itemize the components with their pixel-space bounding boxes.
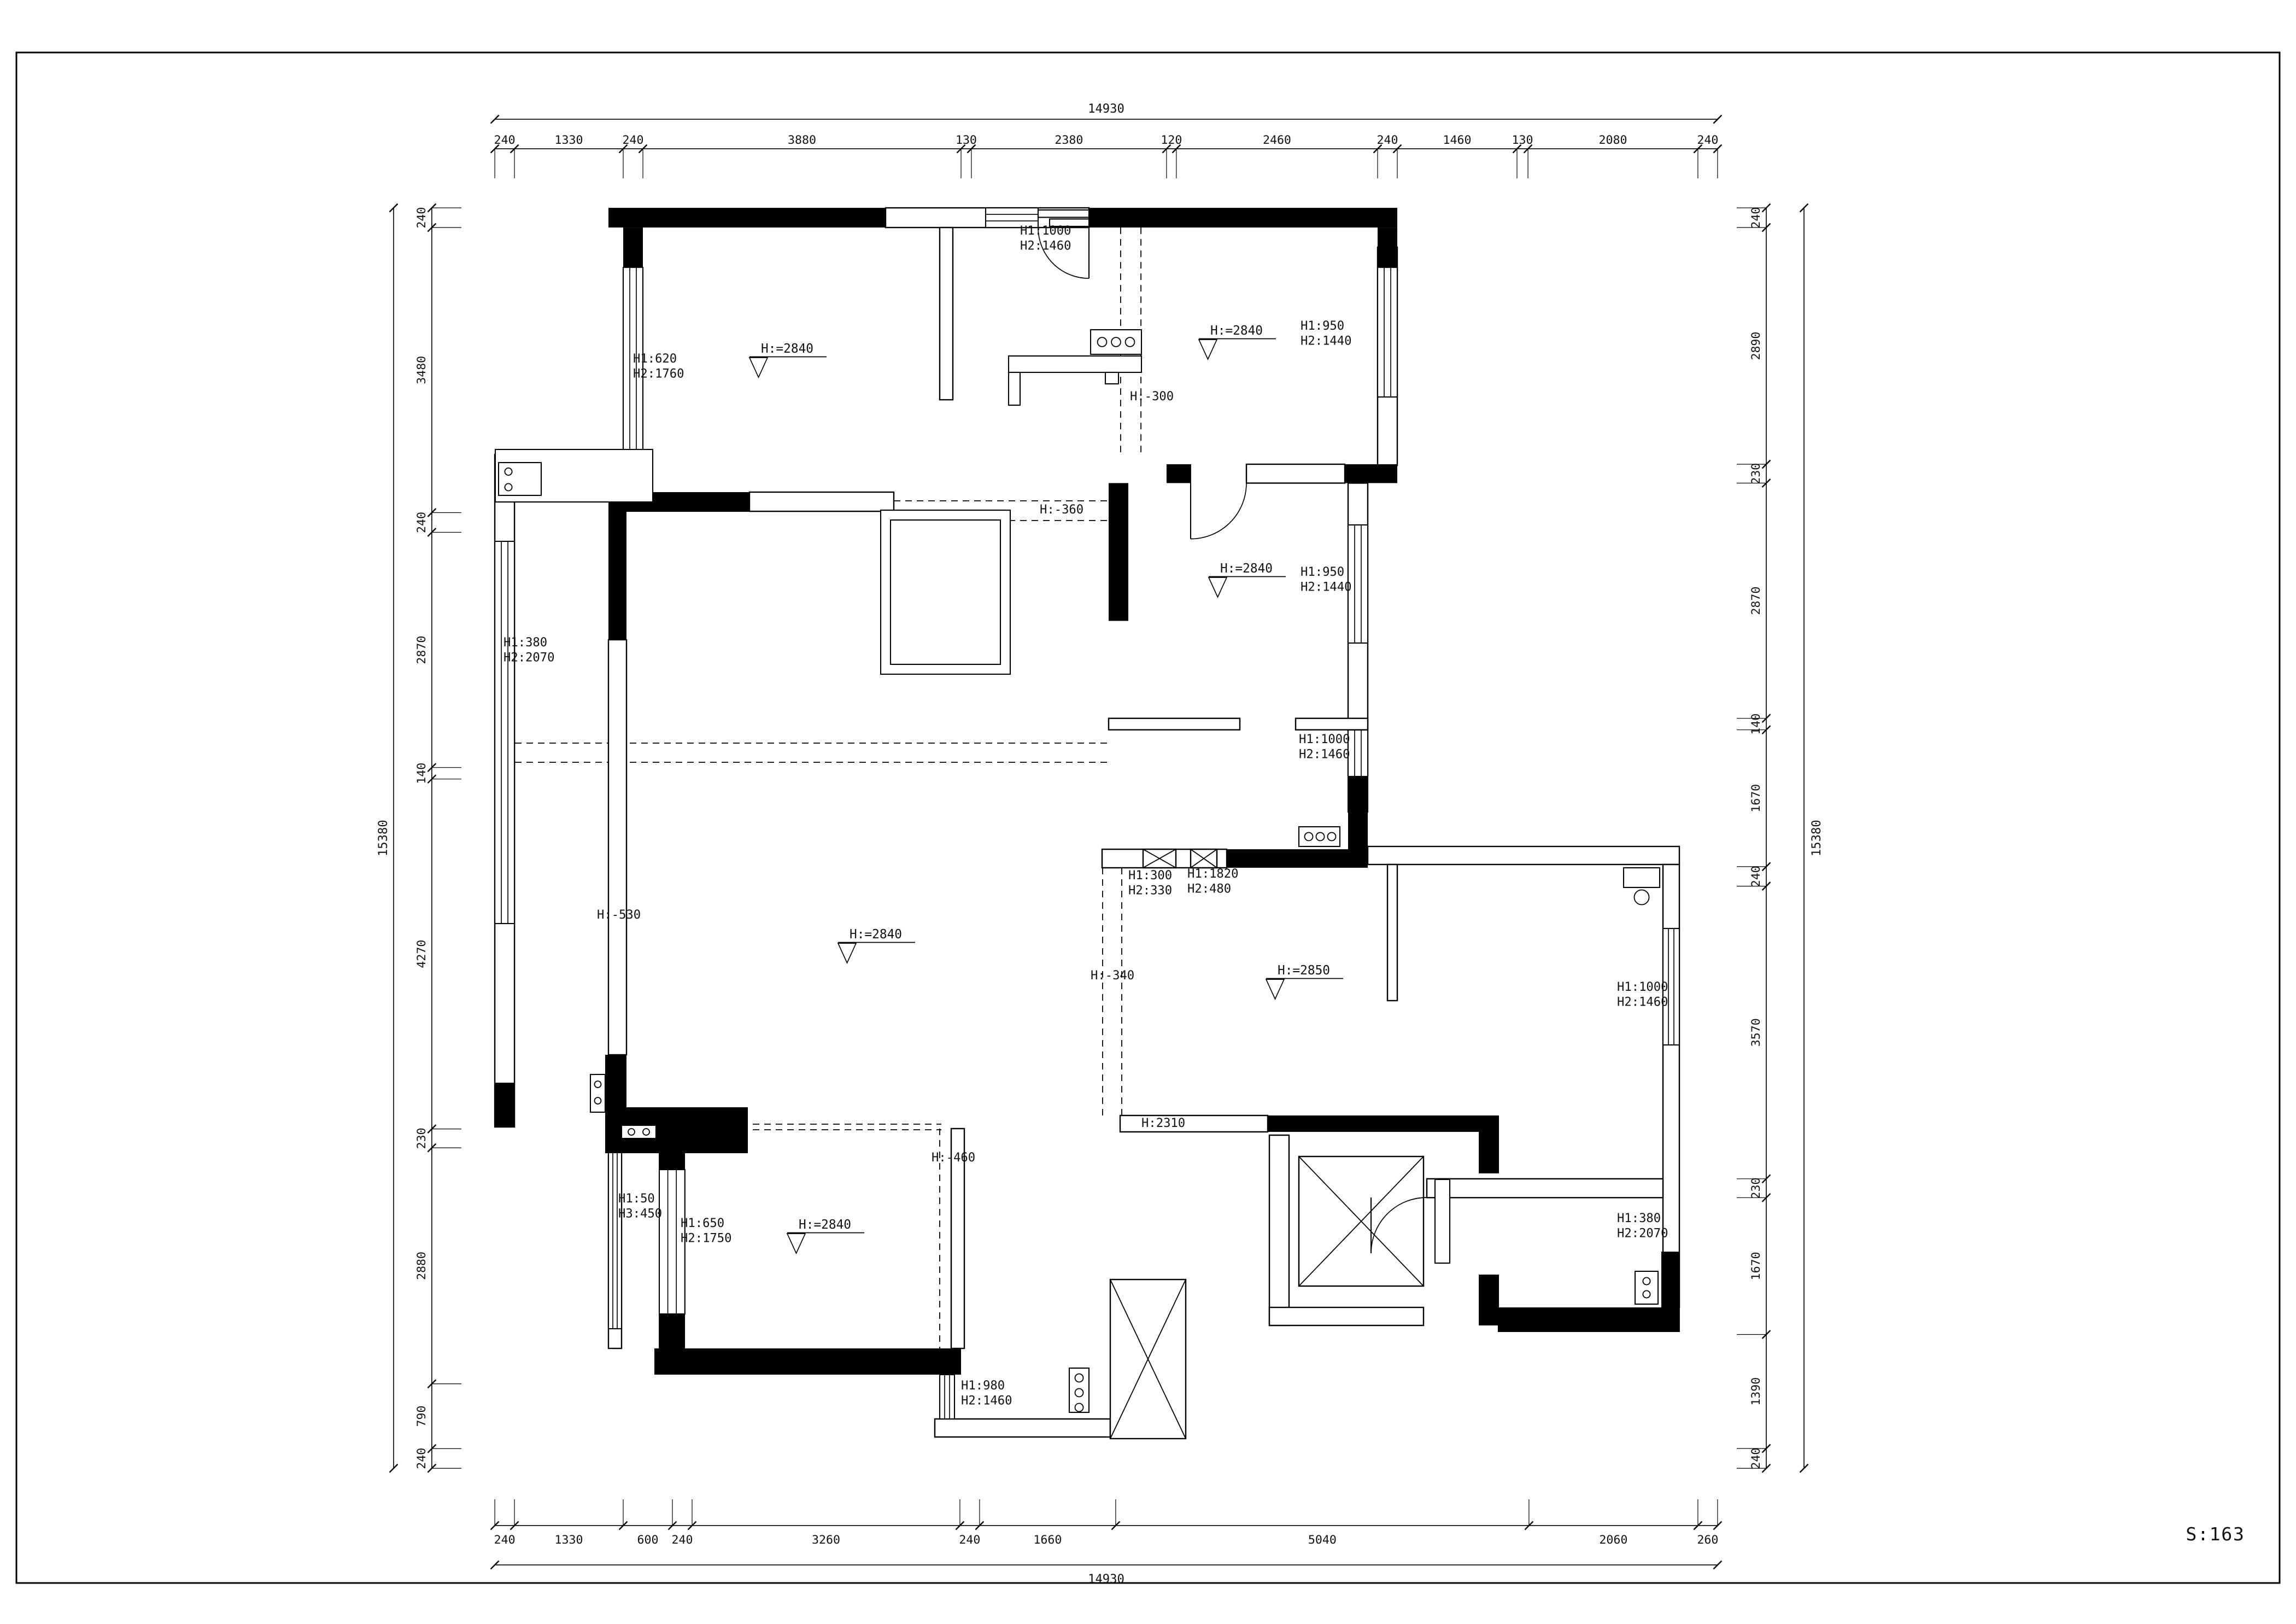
- floor-plan-canvas: 2401330240388013023801202460240146013020…: [0, 0, 2296, 1624]
- room-level-label: H:=2840: [1220, 562, 1273, 576]
- wall-partition: [1269, 1135, 1289, 1325]
- height-annotation: H1:1820: [1187, 867, 1239, 881]
- fixture-outline: [891, 520, 1000, 664]
- top-dim-value: 1330: [555, 133, 583, 147]
- wall-partition: [940, 227, 953, 400]
- height-annotation: H1:380: [1617, 1211, 1661, 1225]
- height-annotation: H:-460: [932, 1150, 975, 1165]
- fixture-circle: [1643, 1277, 1650, 1284]
- height-annotation: H:2310: [1141, 1116, 1185, 1130]
- wall-structural: [1661, 1252, 1679, 1307]
- wall-structural: [623, 227, 643, 267]
- wall-structural: [1498, 1307, 1680, 1332]
- top-dim-value: 130: [956, 133, 977, 147]
- height-annotation: H2:1760: [633, 367, 684, 381]
- left-dim-value: 2870: [415, 636, 429, 664]
- height-annotation: H1:1000: [1617, 980, 1668, 994]
- top-dim-value: 120: [1161, 133, 1182, 147]
- fixture-outline: [622, 1125, 656, 1138]
- room-level-triangle: [838, 943, 856, 963]
- top-dim-value: 2460: [1263, 133, 1291, 147]
- height-annotation: H1:980: [961, 1378, 1005, 1393]
- height-annotation: H1:300: [1128, 868, 1172, 883]
- left-dim-total: 15380: [376, 820, 390, 856]
- height-annotation: H2:2070: [503, 651, 555, 665]
- right-dim-value: 2890: [1749, 332, 1763, 360]
- right-dim-value: 240: [1749, 207, 1763, 229]
- height-annotation: H2:1440: [1301, 580, 1352, 594]
- right-dim-value: 240: [1749, 866, 1763, 887]
- room-level-triangle: [787, 1234, 805, 1253]
- right-dim-value: 1670: [1749, 784, 1763, 813]
- fixture-outline: [499, 463, 541, 495]
- fixture-circle: [1075, 1403, 1083, 1411]
- bottom-dim-value: 3260: [812, 1533, 840, 1547]
- right-dim-value: 1670: [1749, 1252, 1763, 1280]
- fixture-circle: [1304, 832, 1313, 840]
- wall-partition: [749, 492, 894, 511]
- fixture-circle: [505, 483, 512, 490]
- top-dim-value: 2380: [1055, 133, 1083, 147]
- height-annotation: H2:1460: [961, 1394, 1012, 1408]
- door-swing-arc: [1191, 483, 1246, 539]
- height-annotation: H:-360: [1040, 503, 1083, 517]
- height-annotation: H2:1750: [681, 1231, 732, 1246]
- left-dim-value: 2880: [415, 1252, 429, 1280]
- right-dim-value: 230: [1749, 1178, 1763, 1199]
- height-annotation: H2:1460: [1299, 747, 1350, 762]
- height-annotation: H1:950: [1301, 319, 1344, 333]
- bottom-dim-value: 5040: [1308, 1533, 1337, 1547]
- right-dim-total: 15380: [1809, 820, 1824, 856]
- fixture-outline: [1009, 372, 1020, 405]
- left-dim-value: 3480: [415, 356, 429, 384]
- height-annotation: H2:1460: [1617, 995, 1668, 1009]
- height-annotation: H2:2070: [1617, 1226, 1668, 1241]
- top-dim-value: 1460: [1443, 133, 1472, 147]
- fixture-circle: [505, 468, 512, 475]
- wall-partition: [1368, 846, 1679, 864]
- wall-structural: [1167, 464, 1191, 483]
- wall-structural: [495, 1083, 514, 1127]
- right-dim-value: 3570: [1749, 1018, 1763, 1047]
- top-dim-value: 240: [494, 133, 516, 147]
- room-level-label: H:=2840: [850, 927, 902, 942]
- fixture-outline: [1009, 356, 1141, 372]
- height-annotation: H2:1440: [1301, 334, 1352, 348]
- bottom-dim-value: 1660: [1033, 1533, 1062, 1547]
- height-annotation: H1:1000: [1299, 732, 1350, 746]
- fixture-circle: [595, 1081, 601, 1088]
- bottom-dim-value: 1330: [555, 1533, 583, 1547]
- height-annotation: H2:480: [1187, 882, 1231, 896]
- bottom-dim-value: 240: [959, 1533, 980, 1547]
- bottom-dim-value: 240: [672, 1533, 693, 1547]
- top-dim-total: 14930: [1088, 102, 1124, 116]
- wall-structural: [1345, 464, 1397, 483]
- wall-structural: [1268, 1115, 1499, 1132]
- wall-partition: [1427, 1179, 1663, 1197]
- fixture-circle: [1111, 337, 1121, 347]
- height-annotation: H1:650: [681, 1216, 724, 1230]
- top-dim-value: 240: [623, 133, 644, 147]
- height-annotation: H1:50: [618, 1191, 655, 1206]
- wall-partition: [1109, 718, 1240, 730]
- room-level-triangle: [749, 358, 768, 377]
- wall-structural: [1089, 208, 1397, 227]
- right-dim-value: 240: [1749, 1448, 1763, 1469]
- left-dim-value: 240: [415, 512, 429, 533]
- height-annotation: H:-340: [1091, 968, 1134, 983]
- top-dim-value: 240: [1697, 133, 1718, 147]
- height-annotation: H1:620: [633, 352, 677, 366]
- window-symbol: [495, 541, 514, 924]
- height-annotation: H:-530: [597, 908, 641, 922]
- fixture-circle: [595, 1097, 601, 1104]
- wall-partition: [1246, 464, 1345, 483]
- fixture-circle: [1098, 337, 1107, 347]
- wall-structural: [1227, 849, 1368, 868]
- height-annotation: H2:330: [1128, 884, 1172, 898]
- fixture-circle: [1643, 1290, 1650, 1298]
- wall-partition: [1387, 864, 1397, 1001]
- top-dim-value: 3880: [788, 133, 816, 147]
- wall-partition: [608, 640, 626, 1055]
- fixture-circle: [1634, 890, 1649, 904]
- window-symbol: [608, 1148, 622, 1329]
- fixture-circle: [628, 1129, 635, 1135]
- left-dim-value: 4270: [415, 940, 429, 968]
- left-dim-value: 790: [415, 1406, 429, 1427]
- wall-structural: [654, 1348, 961, 1375]
- bottom-dim-total: 14930: [1088, 1572, 1124, 1586]
- fixture-circle: [1327, 832, 1336, 840]
- top-dim-value: 2080: [1599, 133, 1627, 147]
- fixture-circle: [643, 1129, 649, 1135]
- room-level-label: H:=2840: [799, 1218, 851, 1232]
- left-dim-value: 240: [415, 207, 429, 229]
- fixture-outline: [1038, 210, 1089, 217]
- room-level-label: H:=2840: [761, 342, 813, 356]
- wall-structural: [1479, 1275, 1499, 1325]
- fixture-outline: [590, 1074, 605, 1112]
- height-annotation: H3:450: [618, 1207, 662, 1221]
- fixture-circle: [1075, 1388, 1083, 1397]
- fixture-circle: [1075, 1374, 1083, 1382]
- left-dim-value: 230: [415, 1128, 429, 1149]
- wall-structural: [1378, 227, 1397, 267]
- window-symbol: [940, 1375, 954, 1419]
- fixture-outline: [1624, 868, 1660, 887]
- wall-partition: [935, 1419, 1110, 1437]
- height-annotation: H1:950: [1301, 565, 1344, 579]
- fixture-circle: [1126, 337, 1135, 347]
- bottom-dim-value: 240: [494, 1533, 516, 1547]
- wall-structural: [659, 1314, 685, 1348]
- left-dim-value: 240: [415, 1448, 429, 1469]
- room-level-label: H:=2850: [1278, 963, 1330, 978]
- top-dim-value: 240: [1377, 133, 1398, 147]
- wall-partition: [1269, 1307, 1424, 1325]
- room-level-triangle: [1199, 340, 1217, 359]
- height-annotation: H1:1000: [1020, 224, 1071, 238]
- window-symbol: [1378, 267, 1397, 397]
- bottom-dim-value: 260: [1697, 1533, 1718, 1547]
- right-dim-value: 140: [1749, 714, 1763, 735]
- height-annotation: H2:1460: [1020, 239, 1071, 253]
- room-level-triangle: [1209, 577, 1227, 597]
- height-annotation: H1:380: [503, 635, 547, 650]
- drawing-sheet: 2401330240388013023801202460240146013020…: [0, 0, 2296, 1624]
- bottom-dim-value: 2060: [1599, 1533, 1627, 1547]
- wall-structural: [1479, 1132, 1499, 1173]
- right-dim-value: 1390: [1749, 1377, 1763, 1406]
- top-dim-value: 130: [1512, 133, 1533, 147]
- right-dim-value: 2870: [1749, 587, 1763, 615]
- right-dim-value: 230: [1749, 463, 1763, 484]
- wall-structural: [1109, 483, 1128, 621]
- fixture-outline: [1635, 1271, 1658, 1304]
- bottom-dim-value: 600: [637, 1533, 659, 1547]
- room-level-triangle: [1266, 979, 1284, 999]
- height-annotation: H:-300: [1130, 389, 1174, 404]
- fixture-outline: [1435, 1179, 1450, 1263]
- fixture-outline: [1105, 372, 1118, 384]
- left-dim-value: 140: [415, 763, 429, 784]
- scale-label: S:163: [2186, 1523, 2245, 1545]
- wall-partition: [1296, 718, 1368, 730]
- wall-structural: [608, 208, 886, 227]
- fixture-circle: [1316, 832, 1324, 840]
- room-level-label: H:=2840: [1210, 324, 1263, 338]
